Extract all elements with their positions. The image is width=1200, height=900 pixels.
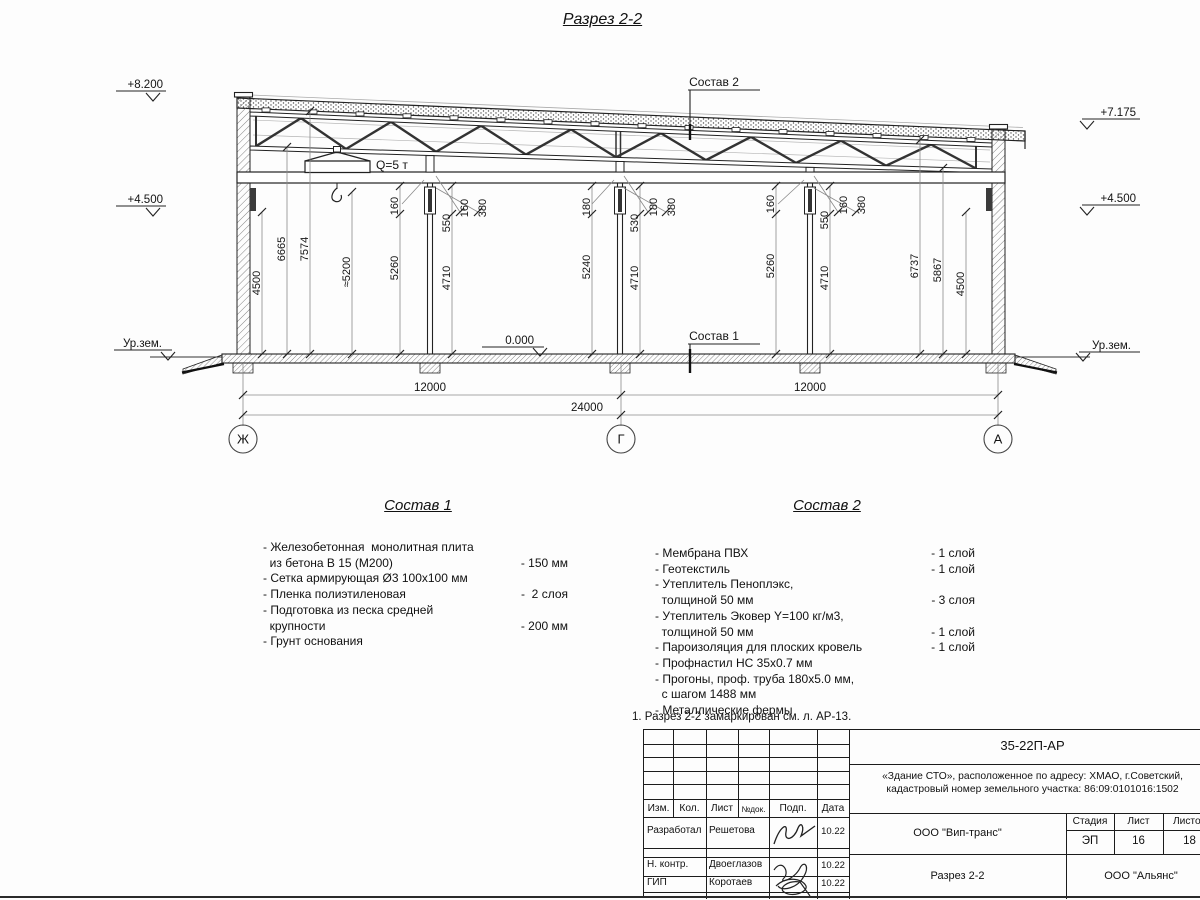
item-value: - 2 слоя [521, 587, 568, 603]
item-text: - Профнастил НС 35x0.7 мм [655, 656, 813, 672]
list-item: - Пленка полиэтиленовая- 2 слоя [263, 587, 568, 603]
dim-160-a: 160 [389, 197, 401, 215]
list-item: - Грунт основания [263, 634, 568, 650]
elev-left-mid: +4.500 [128, 194, 164, 206]
item-text: толщиной 50 мм [655, 593, 754, 609]
item-text: с шагом 1488 мм [655, 687, 756, 703]
row-date: 10.22 [817, 826, 849, 837]
item-text: - Грунт основания [263, 634, 363, 650]
dim-5260-b: 5260 [765, 254, 777, 278]
list-item: - Железобетонная монолитная плита [263, 540, 568, 556]
item-text: - Мембрана ПВХ [655, 546, 748, 562]
signature-reshetova [768, 818, 820, 852]
company-bottom: ООО "Альянс" [1066, 870, 1200, 882]
vertical-dim-lines [262, 111, 966, 354]
axis-g: Г [617, 432, 624, 447]
elev-right-mid: +4.500 [1101, 193, 1137, 205]
row-date: 10.22 [817, 878, 849, 889]
item-value: - 3 слоя [931, 593, 975, 609]
row-name: Двоеглазов [709, 859, 762, 870]
item-text: - Утеплитель Пеноплэкс, [655, 577, 793, 593]
list-item: - Сетка армирующая Ø3 100x100 мм [263, 571, 568, 587]
leader-sostav2: Состав 2 [689, 75, 739, 89]
axis-a: А [994, 432, 1003, 447]
dim-span-left: 12000 [414, 382, 446, 394]
item-text: - Утеплитель Эковер Y=100 кг/м3, [655, 609, 844, 625]
dim-380-b: 380 [666, 198, 678, 216]
row-name: Коротаев [709, 877, 752, 888]
sostav2-list: - Мембрана ПВХ- 1 слой - Геотекстиль- 1 … [655, 546, 975, 719]
ground-level-right: Ур.зем. [1092, 340, 1131, 352]
title-block: 35-22П-АР «Здание СТО», расположенное по… [643, 729, 1200, 898]
item-text: толщиной 50 мм [655, 625, 754, 641]
company-top: ООО "Вип-транс" [849, 827, 1066, 839]
stage-label: Стадия [1066, 816, 1114, 827]
item-text: крупности [263, 619, 325, 635]
dim-160-b: 160 [459, 199, 471, 217]
elev-right-top: +7.175 [1101, 107, 1137, 119]
dim-span-right: 12000 [794, 382, 826, 394]
col-podp: Подп. [769, 803, 817, 814]
axis-zh: Ж [237, 432, 249, 447]
floor-slab [150, 354, 1090, 374]
stage-value: ЭП [1066, 835, 1114, 847]
dim-5260-a: 5260 [389, 256, 401, 280]
dim-4500-right: 4500 [955, 272, 967, 296]
item-value: - 1 слой [931, 640, 975, 656]
dim-160-c: 160 [765, 195, 777, 213]
item-text: - Пленка полиэтиленовая [263, 587, 406, 603]
item-value: - 150 мм [521, 556, 568, 572]
sheets-label: Листов [1163, 816, 1200, 827]
dim-total: 24000 [571, 402, 603, 414]
item-value: - 200 мм [521, 619, 568, 635]
row-date: 10.22 [817, 860, 849, 871]
list-item: с шагом 1488 мм [655, 687, 975, 703]
list-item: - Утеплитель Эковер Y=100 кг/м3, [655, 609, 975, 625]
list-item: - Прогоны, проф. труба 180x5.0 мм, [655, 672, 975, 688]
list-item: - Геотекстиль- 1 слой [655, 562, 975, 578]
dim-380-c: 380 [856, 196, 868, 214]
item-value: - 1 слой [931, 546, 975, 562]
sheets-value: 18 [1163, 835, 1200, 847]
dim-5867: 5867 [932, 258, 944, 282]
row-role: Разработал [647, 825, 701, 836]
dim-180-a: 180 [581, 198, 593, 216]
dim-4710-b: 4710 [629, 266, 641, 290]
sostav1-title: Состав 1 [363, 497, 473, 514]
sostav1-list: - Железобетонная монолитная плита из бет… [263, 540, 568, 650]
doc-number: 35-22П-АР [849, 738, 1200, 753]
col-izm: Изм. [644, 803, 673, 814]
item-text: - Подготовка из песка средней [263, 603, 433, 619]
dim-6737: 6737 [909, 254, 921, 278]
item-value: - 1 слой [931, 562, 975, 578]
list-item: - Пароизоляция для плоских кровель- 1 сл… [655, 640, 975, 656]
item-text: - Железобетонная монолитная плита [263, 540, 474, 556]
section-drawing: Q=5 т [0, 0, 1200, 480]
list-item: - Утеплитель Пеноплэкс, [655, 577, 975, 593]
sheet-frame-bottom [0, 896, 1200, 898]
axis-markers: Ж Г А [229, 425, 1012, 453]
leader-sostav1: Состав 1 [689, 329, 739, 343]
drawing-note: 1. Разрез 2-2 замаркирован см. л. АР-13. [632, 711, 851, 723]
list-item: - Подготовка из песка средней [263, 603, 568, 619]
signature-dvoeglasov-korotaev [766, 856, 820, 900]
col-kol: Кол. [673, 803, 706, 814]
sheet-title: Разрез 2-2 [849, 870, 1066, 882]
object-line2: кадастровый номер земельного участка: 86… [849, 783, 1200, 796]
left-wall [235, 93, 253, 355]
row-name: Решетова [709, 825, 755, 836]
dim-550-a: 550 [441, 214, 453, 232]
dim-7574: 7574 [299, 237, 311, 261]
vertical-dim-texts: 4500 6665 7574 ≈5200 5260 160 550 4710 1… [251, 195, 967, 296]
dim-180-b: 180 [648, 198, 660, 216]
crane-capacity-label: Q=5 т [376, 158, 408, 172]
item-text: - Прогоны, проф. труба 180x5.0 мм, [655, 672, 854, 688]
object-line1: «Здание СТО», расположенное по адресу: Х… [849, 770, 1200, 783]
dim-380-a: 380 [477, 199, 489, 217]
sheet-label: Лист [1114, 816, 1163, 827]
dim-5200: ≈5200 [341, 257, 353, 288]
item-text: - Пароизоляция для плоских кровель [655, 640, 862, 656]
list-item: толщиной 50 мм- 3 слоя [655, 593, 975, 609]
right-wall [990, 125, 1008, 355]
item-text: из бетона В 15 (М200) [263, 556, 393, 572]
sostav2-title: Состав 2 [772, 497, 882, 514]
dim-530: 530 [629, 214, 641, 232]
col-list: Лист [706, 803, 738, 814]
dim-6665: 6665 [276, 237, 288, 261]
list-item: крупности- 200 мм [263, 619, 568, 635]
dim-4710-c: 4710 [819, 266, 831, 290]
col-ndok: №док. [738, 805, 769, 814]
dim-160-d: 160 [838, 196, 850, 214]
sheet-value: 16 [1114, 835, 1163, 847]
list-item: толщиной 50 мм- 1 слой [655, 625, 975, 641]
item-text: - Сетка армирующая Ø3 100x100 мм [263, 571, 468, 587]
item-text: - Геотекстиль [655, 562, 730, 578]
row-role: Н. контр. [647, 859, 688, 870]
list-item: из бетона В 15 (М200)- 150 мм [263, 556, 568, 572]
row-role: ГИП [647, 877, 667, 888]
col-data: Дата [817, 803, 849, 814]
object-description: «Здание СТО», расположенное по адресу: Х… [849, 770, 1200, 796]
dim-4710-a: 4710 [441, 266, 453, 290]
elev-zero: 0.000 [505, 335, 534, 347]
list-item: - Профнастил НС 35x0.7 мм [655, 656, 975, 672]
item-value: - 1 слой [931, 625, 975, 641]
elev-left-top: +8.200 [128, 79, 164, 91]
dim-550-b: 550 [819, 211, 831, 229]
dim-4500-left: 4500 [251, 271, 263, 295]
dim-5240: 5240 [581, 255, 593, 279]
list-item: - Мембрана ПВХ- 1 слой [655, 546, 975, 562]
ground-level-left: Ур.зем. [123, 338, 162, 350]
